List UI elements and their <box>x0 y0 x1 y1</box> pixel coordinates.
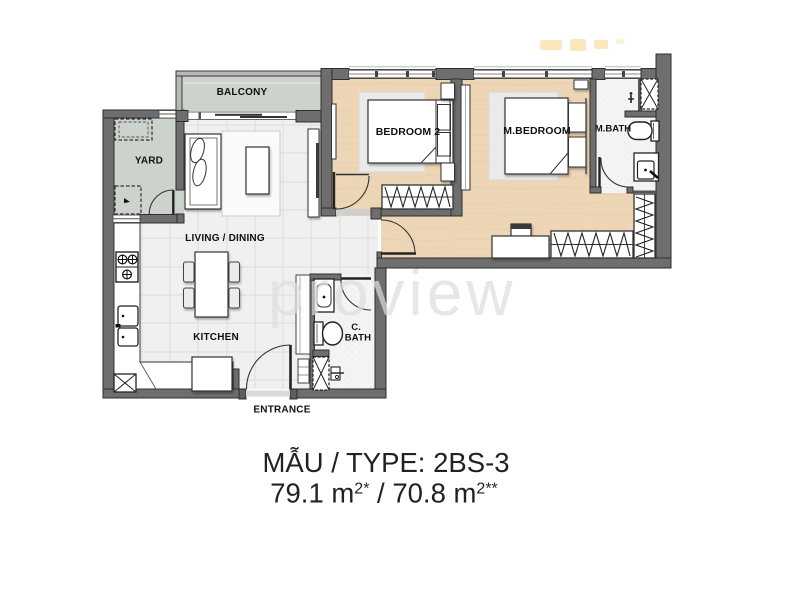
svg-text:79.1 m2* / 70.8 m2**: 79.1 m2* / 70.8 m2** <box>270 478 498 509</box>
svg-text:MẪU / TYPE: 2BS-3: MẪU / TYPE: 2BS-3 <box>262 447 509 478</box>
svg-text:M.BEDROOM: M.BEDROOM <box>503 125 571 137</box>
svg-text:YARD: YARD <box>135 156 163 167</box>
svg-text:ENTRANCE: ENTRANCE <box>253 405 310 416</box>
svg-text:KITCHEN: KITCHEN <box>193 332 239 343</box>
svg-text:BALCONY: BALCONY <box>217 87 268 98</box>
svg-text:BEDROOM 2: BEDROOM 2 <box>376 126 441 138</box>
svg-text:C.: C. <box>351 322 361 333</box>
svg-text:BATH: BATH <box>345 333 371 344</box>
svg-text:LIVING / DINING: LIVING / DINING <box>185 233 265 244</box>
svg-text:proview: proview <box>268 257 517 329</box>
svg-text:M.BATH: M.BATH <box>595 124 631 135</box>
